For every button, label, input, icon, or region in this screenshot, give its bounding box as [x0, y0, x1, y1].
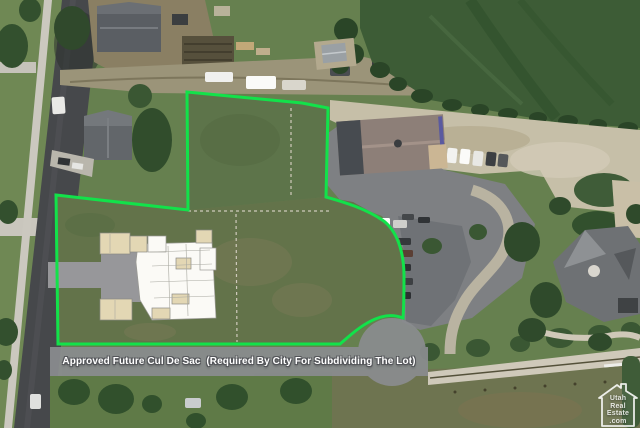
small-shed — [314, 38, 357, 70]
material-stack — [214, 6, 230, 16]
watermark-line: Real — [597, 403, 639, 411]
tree — [54, 6, 90, 50]
truck — [185, 398, 201, 408]
building-extension — [428, 144, 448, 169]
roof-dark-end — [336, 120, 364, 176]
entry-feature — [588, 265, 600, 277]
watermark-line: .com — [597, 418, 639, 426]
commercial-building — [336, 114, 448, 175]
watermark-line: Utah — [597, 395, 639, 403]
car-on-road — [51, 97, 65, 115]
cul-de-sac-caption: Approved Future Cul De Sac (Required By … — [50, 347, 428, 376]
pallet — [256, 48, 270, 55]
trees — [132, 108, 172, 172]
tree — [128, 84, 152, 108]
car-on-road-2 — [30, 394, 41, 409]
watermark: Utah Real Estate .com — [597, 382, 639, 428]
dry-patch — [458, 392, 582, 428]
plan-rooms-white — [136, 236, 216, 320]
dark-vehicle — [172, 14, 188, 25]
aerial-property-photo: Approved Future Cul De Sac (Required By … — [0, 0, 640, 428]
watermark-line: Estate — [597, 410, 639, 418]
house-top-center — [54, 2, 161, 52]
watermark-text: Utah Real Estate .com — [597, 395, 639, 425]
pallet — [236, 42, 254, 50]
garage-roof — [618, 298, 638, 313]
